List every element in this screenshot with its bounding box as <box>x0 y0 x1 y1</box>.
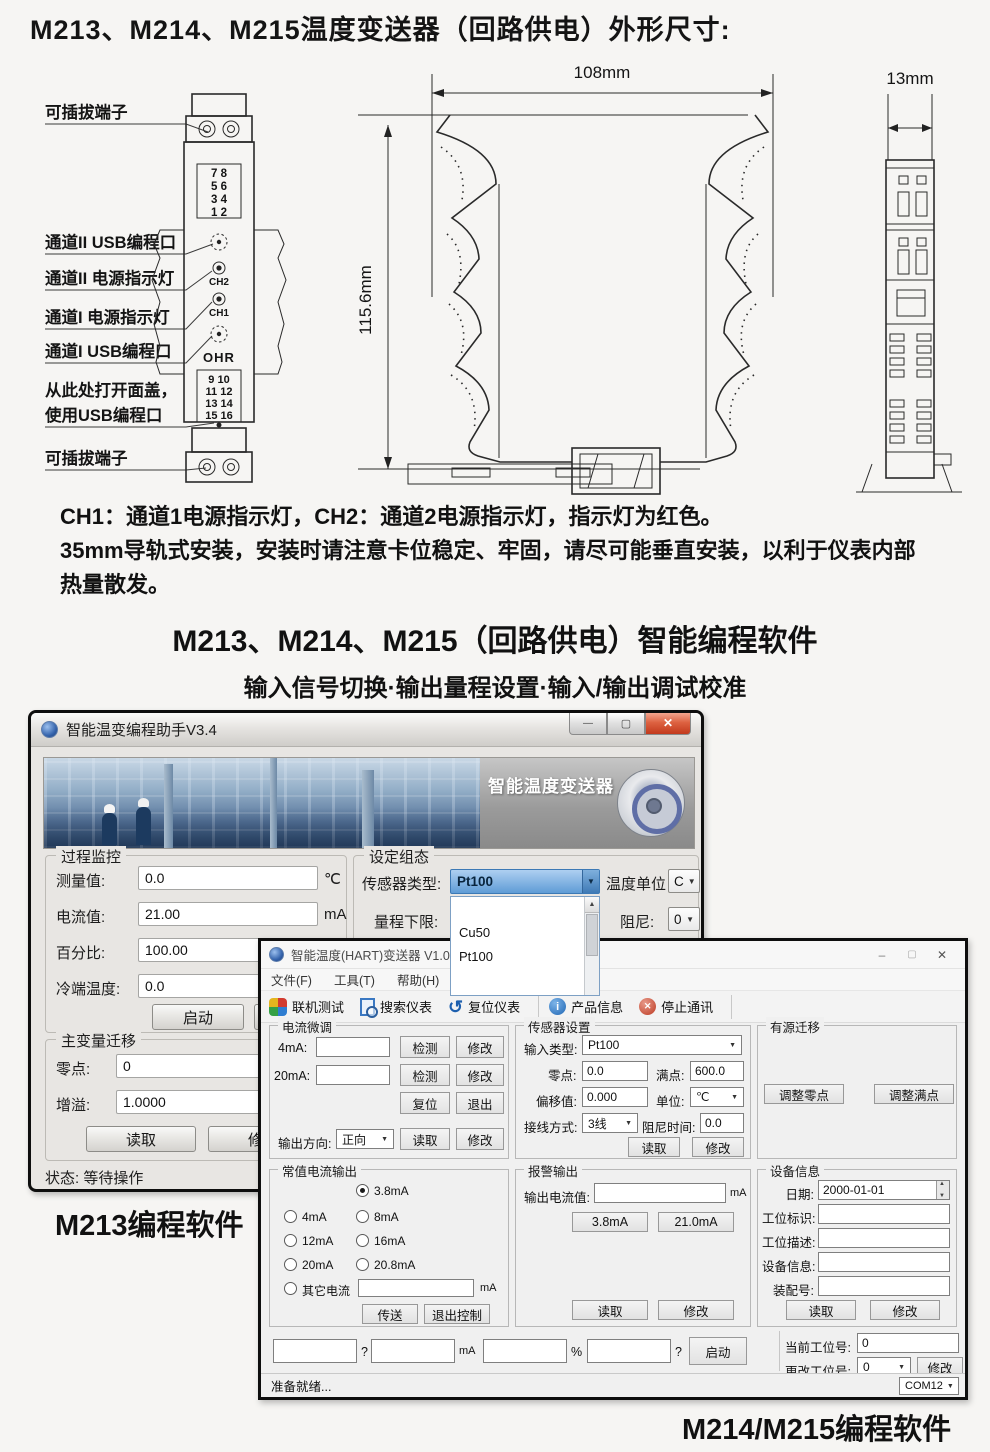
output-direction-value: 正向 <box>342 1131 366 1148</box>
menubar: 文件(F) 工具(T) 帮助(H) <box>261 969 965 991</box>
reset-button[interactable]: 复位 <box>400 1092 450 1114</box>
other-current-unit: mA <box>480 1282 497 1294</box>
damping-time-label: 阻尼时间: <box>642 1117 695 1136</box>
current-value-label: 电流值: <box>56 906 105 927</box>
date-label: 日期: <box>762 1184 814 1203</box>
radio-label: 3.8mA <box>374 1184 409 1198</box>
worker-figure <box>102 813 117 845</box>
info-label: 设备信息: <box>762 1256 814 1275</box>
banner-side-panel: 智能温度变送器 <box>480 758 694 848</box>
terminal-row: 5 6 <box>211 181 227 193</box>
terminal-row: 1 2 <box>211 207 227 219</box>
dropdown-scrollbar[interactable] <box>584 897 599 995</box>
detect-20ma-button[interactable]: 检测 <box>400 1064 450 1086</box>
group-title: 电流微调 <box>278 1017 336 1036</box>
detect-4ma-button[interactable]: 检测 <box>400 1036 450 1058</box>
group-active-shift: 有源迁移 调整零点 调整满点 <box>757 1025 957 1159</box>
assembly-input[interactable] <box>818 1276 950 1296</box>
info-input[interactable] <box>818 1252 950 1272</box>
group-device-info: 设备信息 日期: 工位标识: 工位描述: 设备信息: 装配号: 读取 修改 <box>757 1169 957 1327</box>
close-button[interactable] <box>645 713 691 735</box>
other-current-label: 其它电流 <box>302 1282 350 1299</box>
radio-label: 20mA <box>302 1258 333 1272</box>
group-title: 常值电流输出 <box>278 1161 361 1180</box>
modify-direction-button[interactable]: 修改 <box>456 1128 504 1150</box>
measured-value-label: 测量值: <box>56 870 105 891</box>
radio-3p8ma[interactable] <box>356 1184 369 1197</box>
toolbar-reset-meter[interactable]: ↺ 复位仪表 <box>448 997 520 1016</box>
status-text: 准备就绪... <box>271 1376 331 1395</box>
unit-value: ℃ <box>696 1090 709 1104</box>
label-open-cover-line1: 从此处打开面盖， <box>45 380 177 400</box>
toolbar-stop-comm[interactable]: ✕ 停止通讯 <box>639 997 713 1016</box>
bottom-sep-4: ? <box>675 1345 682 1359</box>
radio-other-current[interactable] <box>284 1282 297 1295</box>
trim-20ma-input[interactable] <box>316 1065 390 1085</box>
com-port-combobox[interactable]: COM12 <box>899 1377 959 1395</box>
app-logo-icon <box>269 947 284 962</box>
change-station-value: 0 <box>863 1360 870 1374</box>
exit-button[interactable]: 退出 <box>456 1092 504 1114</box>
alarm-low-button[interactable]: 3.8mA <box>572 1212 648 1232</box>
tower-silhouette <box>362 770 374 848</box>
read-sensor-button[interactable]: 读取 <box>628 1137 680 1157</box>
menu-help[interactable]: 帮助(H) <box>397 970 439 989</box>
radio-label: 4mA <box>302 1210 327 1224</box>
link-test-icon <box>269 998 287 1016</box>
toolbar-label: 停止通讯 <box>661 997 713 1016</box>
modify-20ma-button[interactable]: 修改 <box>456 1064 504 1086</box>
radio-12ma[interactable] <box>284 1234 297 1247</box>
group-title: 有源迁移 <box>766 1017 824 1036</box>
desc-input[interactable] <box>818 1228 950 1248</box>
toolbar-search-meter[interactable]: 搜索仪表 <box>360 997 432 1016</box>
group-current-trim: 电流微调 4mA: 检测 修改 20mA: 检测 修改 复位 退出 输出方向: … <box>269 1025 509 1159</box>
section-title: M213、M214、M215（回路供电）智能编程软件 <box>0 616 990 660</box>
bottom-sep-2: mA <box>459 1345 476 1357</box>
dropdown-item[interactable]: Pt100 <box>451 945 599 969</box>
terminal-row: 7 8 <box>211 168 228 180</box>
adjust-zero-button[interactable]: 调整零点 <box>764 1084 844 1104</box>
terminal-row: 15 16 <box>205 410 233 422</box>
exit-control-button[interactable]: 退出控制 <box>424 1304 490 1324</box>
damping-time-input[interactable] <box>700 1113 744 1133</box>
output-direction-label: 输出方向: <box>278 1133 331 1152</box>
scroll-thumb[interactable] <box>586 914 598 956</box>
worker-figure <box>136 807 151 845</box>
toolbar-separator <box>731 995 732 1019</box>
toolbar-link-test[interactable]: 联机测试 <box>269 997 344 1016</box>
alarm-current-unit: mA <box>730 1187 747 1199</box>
bottom-sep-3: % <box>571 1345 582 1359</box>
window-m214-m215-software: 智能温度(HART)变送器 V1.05 (2017-04-07) 文件(F) 工… <box>258 938 968 1400</box>
unit-combobox[interactable]: ℃ <box>690 1087 744 1107</box>
send-button[interactable]: 传送 <box>362 1304 418 1324</box>
tower-silhouette <box>164 764 173 848</box>
modify-alarm-button[interactable]: 修改 <box>658 1300 734 1320</box>
installation-notes: CH1：通道1电源指示灯，CH2：通道2电源指示灯，指示灯为红色。 35mm导轨… <box>60 500 916 602</box>
menu-file[interactable]: 文件(F) <box>271 970 312 989</box>
label-ch1-usb-port: 通道I USB编程口 <box>45 341 172 361</box>
damping-label: 阻尼: <box>620 911 654 932</box>
start-button[interactable]: 启动 <box>689 1337 747 1365</box>
radio-20ma[interactable] <box>284 1258 297 1271</box>
toolbar-label: 联机测试 <box>292 997 344 1016</box>
full-label: 满点: <box>656 1065 684 1084</box>
adjust-full-button[interactable]: 调整满点 <box>874 1084 954 1104</box>
transmitter-image <box>617 769 685 837</box>
tag-label: 工位标识: <box>762 1208 814 1227</box>
app-logo-icon <box>41 721 58 738</box>
radio-16ma[interactable] <box>356 1234 369 1247</box>
wiring-combobox[interactable]: 3线 <box>582 1113 638 1133</box>
read-alarm-button[interactable]: 读取 <box>572 1300 648 1320</box>
terminal-row: 9 10 <box>208 374 229 386</box>
search-meter-icon <box>360 998 375 1016</box>
tower-silhouette <box>270 758 277 848</box>
status-text: 状态: 等待操作 <box>45 1167 143 1188</box>
radio-label: 16mA <box>374 1234 405 1248</box>
radio-20p8ma[interactable] <box>356 1258 369 1271</box>
current-value-input[interactable] <box>138 902 318 926</box>
read-button[interactable]: 读取 <box>86 1126 196 1152</box>
modify-device-button[interactable]: 修改 <box>870 1300 940 1320</box>
statusbar: 准备就绪... COM12 <box>261 1373 965 1397</box>
banner: 智能温度变送器 <box>43 757 695 849</box>
brand-logo: OHR <box>203 350 235 365</box>
reset-meter-icon: ↺ <box>448 998 463 1016</box>
minimize-button[interactable] <box>569 713 607 735</box>
side-vents <box>890 334 931 443</box>
input-type-value: Pt100 <box>588 1038 619 1052</box>
terminal-row: 13 14 <box>205 398 233 410</box>
industrial-plant-photo <box>44 758 480 848</box>
bottom-field-1[interactable] <box>273 1339 357 1363</box>
range-low-label: 量程下限: <box>374 911 438 932</box>
label-plug-terminal-top: 可插拔端子 <box>45 102 128 122</box>
modify-4ma-button[interactable]: 修改 <box>456 1036 504 1058</box>
damping-value: 0 <box>674 912 682 927</box>
other-current-input[interactable] <box>358 1279 474 1297</box>
window1-titlebar[interactable]: 智能温变编程助手V3.4 <box>31 713 701 747</box>
label-open-cover-line2: 使用USB编程口 <box>44 405 162 425</box>
bottom-sep-1: ? <box>361 1345 368 1359</box>
close-button[interactable] <box>927 942 957 968</box>
wiring-label: 接线方式: <box>524 1117 577 1136</box>
zero-label: 零点: <box>56 1058 90 1079</box>
ch2-label: CH2 <box>209 277 229 288</box>
toolbar-product-info[interactable]: i 产品信息 <box>549 997 623 1016</box>
group-title: 过程监控 <box>56 846 126 867</box>
stop-comm-icon: ✕ <box>639 998 656 1015</box>
radio-8ma[interactable] <box>356 1210 369 1223</box>
radio-4ma[interactable] <box>284 1210 297 1223</box>
page-title: M213、M214、M215温度变送器（回路供电）外形尺寸: <box>30 8 731 47</box>
bottom-field-2[interactable] <box>371 1339 455 1363</box>
group-title: 主变量迁移 <box>56 1030 141 1051</box>
offset-label: 偏移值: <box>536 1091 577 1110</box>
caption-m214-m215: M214/M215编程软件 <box>682 1406 951 1448</box>
alarm-current-label: 输出电流值: <box>524 1187 590 1206</box>
radio-label: 20.8mA <box>374 1258 415 1272</box>
note-line: CH1：通道1电源指示灯，CH2：通道2电源指示灯，指示灯为红色。 <box>60 500 916 534</box>
measured-value-input[interactable] <box>138 866 318 890</box>
scroll-up-icon[interactable] <box>585 897 599 913</box>
output-direction-combobox[interactable]: 正向 <box>336 1129 394 1149</box>
group-title: 传感器设置 <box>524 1017 595 1036</box>
group-alarm-output: 报警输出 输出电流值: mA 3.8mA 21.0mA 读取 修改 <box>515 1169 751 1327</box>
bottom-field-3[interactable] <box>483 1339 567 1363</box>
input-type-combobox[interactable]: Pt100 <box>582 1035 742 1055</box>
dropdown-item[interactable]: Cu50 <box>451 921 599 945</box>
product-info-icon: i <box>549 998 566 1015</box>
cold-junction-label: 冷端温度: <box>56 978 120 999</box>
radio-label: 8mA <box>374 1210 399 1224</box>
window2-titlebar[interactable]: 智能温度(HART)变送器 V1.05 (2017-04-07) <box>261 941 965 969</box>
dim-width-label: 108mm <box>574 63 631 82</box>
radio-label: 12mA <box>302 1234 333 1248</box>
read-direction-button[interactable]: 读取 <box>400 1128 450 1150</box>
label-plug-terminal-bottom: 可插拔端子 <box>45 448 128 468</box>
date-input[interactable] <box>818 1180 950 1200</box>
dimension-diagram: 可插拔端子 通道II USB编程口 通道II 电源指示灯 通道I 电源指示灯 通… <box>0 52 990 500</box>
bottom-field-4[interactable] <box>587 1339 671 1363</box>
ch1-label: CH1 <box>209 308 229 319</box>
current-value-unit: mA <box>324 906 347 923</box>
input-type-label: 输入类型: <box>524 1039 577 1058</box>
percent-label: 百分比: <box>56 942 105 963</box>
page: M213、M214、M215温度变送器（回路供电）外形尺寸: 可插拔端子 通道I… <box>0 0 990 1452</box>
alarm-high-button[interactable]: 21.0mA <box>658 1212 734 1232</box>
banner-product-label: 智能温度变送器 <box>488 772 614 797</box>
device-front-view: 7 8 5 6 3 4 1 2 CH2 CH1 OHR 9 10 11 12 1… <box>184 94 254 482</box>
sensor-type-combobox[interactable]: Pt100 <box>450 869 600 894</box>
temp-unit-combobox[interactable]: C <box>668 869 700 893</box>
note-line: 35mm导轨式安装，安装时请注意卡位稳定、牢固，请尽可能垂直安装，以利于仪表内部 <box>60 534 916 568</box>
date-spinner[interactable] <box>936 1181 949 1199</box>
maximize-button[interactable] <box>897 942 927 968</box>
terminal-row: 3 4 <box>211 194 228 206</box>
menu-tools[interactable]: 工具(T) <box>334 970 375 989</box>
current-station-label: 当前工位号: <box>785 1337 851 1356</box>
tag-input[interactable] <box>818 1204 950 1224</box>
label-ch1-power-led: 通道I 电源指示灯 <box>45 307 170 327</box>
toolbar-label: 搜索仪表 <box>380 997 432 1016</box>
measured-value-unit: ℃ <box>324 870 341 888</box>
device-top-view: 108mm 115.6mm <box>356 63 773 494</box>
start-button[interactable]: 启动 <box>152 1004 244 1030</box>
dim-height-label: 115.6mm <box>356 265 375 335</box>
window1-title: 智能温变编程助手V3.4 <box>66 719 217 740</box>
unit-label: 单位: <box>656 1091 684 1110</box>
zero-label: 零点: <box>548 1065 576 1084</box>
device-side-view: 13mm <box>856 69 962 492</box>
damping-combobox[interactable]: 0 <box>668 907 700 931</box>
toolbar-label: 产品信息 <box>571 997 623 1016</box>
group-sensor-settings: 传感器设置 输入类型: Pt100 零点: 满点: 偏移值: 单位: ℃ 接线方… <box>515 1025 751 1159</box>
sensor-type-value: Pt100 <box>457 874 493 889</box>
chevron-down-icon[interactable] <box>582 870 599 893</box>
note-line: 热量散发。 <box>60 568 916 602</box>
dim-side-label: 13mm <box>886 69 933 88</box>
wiring-value: 3线 <box>588 1115 607 1132</box>
terminal-row: 11 12 <box>206 386 233 398</box>
caption-m213: M213编程软件 <box>55 1202 244 1244</box>
trim-4ma-input[interactable] <box>316 1037 390 1057</box>
current-station-input[interactable] <box>857 1333 959 1353</box>
bottom-divider <box>779 1331 780 1371</box>
read-device-button[interactable]: 读取 <box>786 1300 856 1320</box>
toolbar-label: 复位仪表 <box>468 997 520 1016</box>
com-port-value: COM12 <box>905 1380 943 1392</box>
trim-20ma-label: 20mA: <box>274 1069 310 1083</box>
group-title: 设备信息 <box>766 1161 824 1180</box>
modify-sensor-button[interactable]: 修改 <box>692 1137 744 1157</box>
maximize-button[interactable] <box>607 713 645 735</box>
alarm-current-input[interactable] <box>594 1183 726 1203</box>
full-input[interactable] <box>690 1061 744 1081</box>
assembly-label: 装配号: <box>762 1280 814 1299</box>
gain-label: 增溢: <box>56 1094 90 1115</box>
desc-label: 工位描述: <box>762 1232 814 1251</box>
temp-unit-label: 温度单位 <box>606 873 666 894</box>
trim-4ma-label: 4mA: <box>278 1041 307 1055</box>
minimize-button[interactable] <box>867 942 897 968</box>
sensor-type-dropdown-list[interactable]: Cu50 Pt100 <box>450 896 600 996</box>
offset-input[interactable] <box>582 1087 648 1107</box>
dropdown-item[interactable] <box>451 897 599 921</box>
group-title: 设定组态 <box>364 846 434 867</box>
temp-unit-value: C <box>674 874 684 889</box>
toolbar: 联机测试 搜索仪表 ↺ 复位仪表 i 产品信息 ✕ 停止通讯 <box>261 991 965 1023</box>
toolbar-separator <box>538 995 539 1019</box>
group-title: 报警输出 <box>524 1161 582 1180</box>
sensor-type-label: 传感器类型: <box>362 873 441 894</box>
group-constant-current: 常值电流输出 3.8mA 4mA 8mA 12mA 16mA 20mA 20.8… <box>269 1169 509 1327</box>
zero-input[interactable] <box>582 1061 648 1081</box>
section-subtitle: 输入信号切换·输出量程设置·输入/输出调试校准 <box>0 668 990 703</box>
